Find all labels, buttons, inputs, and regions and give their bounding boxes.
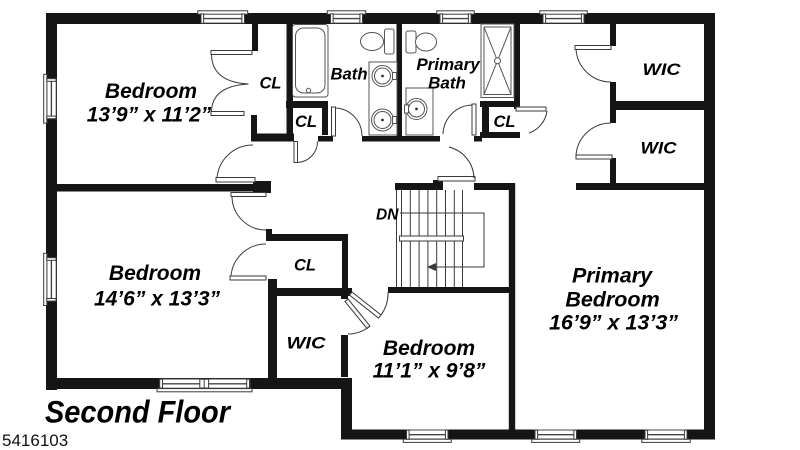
svg-text:WIC: WIC xyxy=(287,334,327,353)
svg-text:Bedroom: Bedroom xyxy=(565,288,659,312)
svg-text:CL: CL xyxy=(260,75,282,93)
svg-text:CL: CL xyxy=(295,113,317,131)
svg-text:Bedroom: Bedroom xyxy=(105,80,197,103)
svg-text:13’9” x 11’2”: 13’9” x 11’2” xyxy=(87,104,212,127)
svg-text:11’1” x 9’8”: 11’1” x 9’8” xyxy=(373,360,486,383)
svg-text:WIC: WIC xyxy=(643,60,682,79)
svg-text:16’9” x 13’3”: 16’9” x 13’3” xyxy=(549,311,678,335)
svg-text:WIC: WIC xyxy=(641,139,678,158)
svg-text:CL: CL xyxy=(494,113,516,131)
svg-text:Bedroom: Bedroom xyxy=(383,337,475,360)
svg-text:5416103: 5416103 xyxy=(2,431,68,450)
svg-text:Primary: Primary xyxy=(416,55,481,74)
svg-text:Primary: Primary xyxy=(572,264,653,288)
svg-text:DN: DN xyxy=(376,207,399,224)
svg-text:CL: CL xyxy=(294,257,316,275)
svg-text:Bath: Bath xyxy=(428,74,466,93)
svg-text:14’6” x 13’3”: 14’6” x 13’3” xyxy=(94,288,221,311)
svg-text:Bath: Bath xyxy=(331,65,368,84)
svg-text:Second Floor: Second Floor xyxy=(45,394,232,430)
svg-text:Bedroom: Bedroom xyxy=(109,262,201,285)
